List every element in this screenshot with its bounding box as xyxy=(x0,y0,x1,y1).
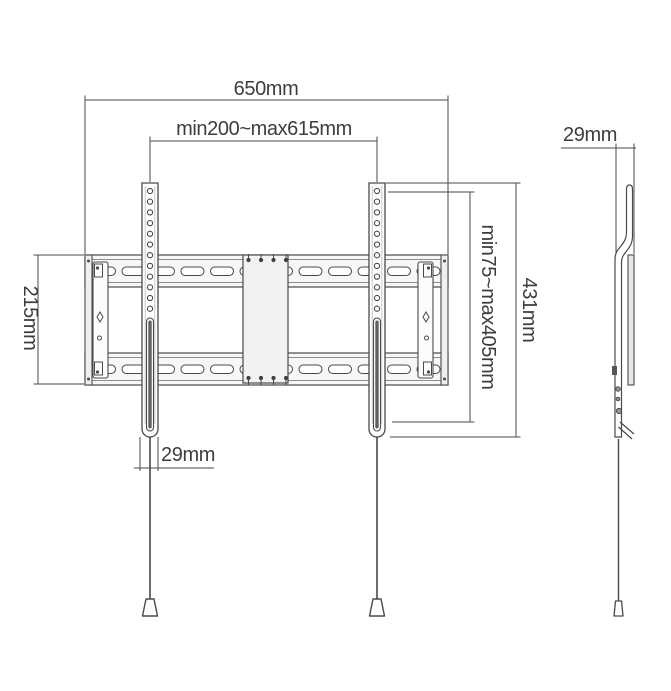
pull-cord-side xyxy=(614,439,623,616)
side-profile xyxy=(612,185,634,616)
technical-drawing: 650mm min200~max615mm 215mm min75~max405… xyxy=(0,0,671,691)
dim-label-total-height: 431mm xyxy=(517,275,539,345)
side-wall-plate xyxy=(628,255,634,385)
vesa-plate xyxy=(243,254,288,385)
arm-slot xyxy=(147,318,154,431)
dim-label-depth: 29mm xyxy=(563,125,623,146)
tv-arm-left xyxy=(142,183,158,437)
end-cap-left xyxy=(85,255,92,385)
dim-label-mount-width-range: min200~max615mm xyxy=(164,119,364,140)
latch-bracket-right xyxy=(418,262,433,378)
dim-label-total-width: 650mm xyxy=(166,79,366,100)
dim-label-plate-height: 215mm xyxy=(18,283,40,353)
pull-handle-side xyxy=(614,601,623,616)
pull-handle-right xyxy=(370,599,385,616)
front-view-drawing xyxy=(34,96,521,617)
pull-cord-left xyxy=(143,437,158,616)
dim-plate-height-line xyxy=(34,255,85,384)
arm-slot xyxy=(374,318,381,431)
pull-cord-right xyxy=(370,437,385,616)
pull-handle-left xyxy=(143,599,158,616)
dim-label-mount-height-range: min75~max405mm xyxy=(476,222,498,392)
latch-bracket-left xyxy=(93,262,108,378)
drawing-canvas xyxy=(0,0,671,691)
side-lock-tab xyxy=(612,366,617,375)
dim-label-arm-width: 29mm xyxy=(161,445,221,466)
end-cap-right xyxy=(441,255,448,385)
side-view-drawing xyxy=(561,144,636,617)
dim-mount-width-line xyxy=(150,137,377,183)
tv-arm-right xyxy=(369,183,385,437)
dim-total-height-line xyxy=(386,183,521,437)
